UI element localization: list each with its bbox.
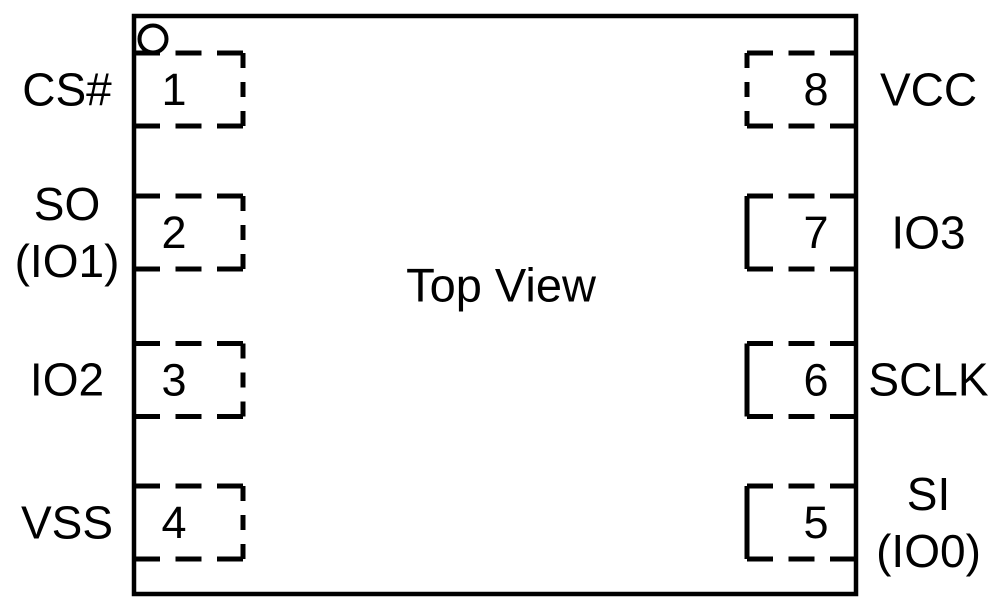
pin-number-2: 2 bbox=[161, 207, 186, 258]
pin-2-label: SO(IO1) bbox=[0, 176, 134, 290]
pin-pad-6 bbox=[747, 344, 856, 417]
pin-7-label: IO3 bbox=[857, 204, 1000, 261]
pin1-indicator-dot bbox=[140, 26, 167, 53]
top-view-label: Top View bbox=[406, 259, 597, 312]
pin-number-5: 5 bbox=[803, 497, 828, 548]
pin-number-6: 6 bbox=[803, 355, 828, 406]
pin-5-label-line: (IO0) bbox=[857, 523, 1000, 580]
pin-6-label-line: SCLK bbox=[857, 352, 1000, 409]
pin-4-label: VSS bbox=[0, 494, 134, 551]
pin-number-4: 4 bbox=[161, 497, 186, 548]
pin-8-label: VCC bbox=[857, 61, 1000, 118]
pin-number-3: 3 bbox=[161, 355, 186, 406]
pin-3-label: IO2 bbox=[0, 352, 134, 409]
pin-1-label: CS# bbox=[0, 61, 134, 118]
pin-pad-4 bbox=[134, 486, 243, 559]
pin-pad-7 bbox=[747, 196, 856, 269]
pin-2-label-line: SO bbox=[0, 176, 134, 233]
pin-4-label-line: VSS bbox=[0, 494, 134, 551]
pin-8-label-line: VCC bbox=[857, 61, 1000, 118]
pin-3-label-line: IO2 bbox=[0, 352, 134, 409]
pin-number-8: 8 bbox=[803, 64, 828, 115]
pin-pad-1 bbox=[134, 53, 243, 126]
pin-pad-3 bbox=[134, 344, 243, 417]
pinout-diagram: 12345678 Top View CS#SO(IO1)IO2VSSSI(IO0… bbox=[0, 0, 1000, 614]
pin-7-label-line: IO3 bbox=[857, 204, 1000, 261]
pin-1-label-line: CS# bbox=[0, 61, 134, 118]
pin-pad-5 bbox=[747, 486, 856, 559]
pin-2-label-line: (IO1) bbox=[0, 233, 134, 290]
pin-number-7: 7 bbox=[803, 207, 828, 258]
pin-pad-8 bbox=[747, 53, 856, 126]
pin-pad-2 bbox=[134, 196, 243, 269]
package-drawing: 12345678 Top View bbox=[0, 0, 1000, 614]
pin-number-1: 1 bbox=[161, 64, 186, 115]
pin-6-label: SCLK bbox=[857, 352, 1000, 409]
pin-5-label: SI(IO0) bbox=[857, 466, 1000, 580]
pin-5-label-line: SI bbox=[857, 466, 1000, 523]
